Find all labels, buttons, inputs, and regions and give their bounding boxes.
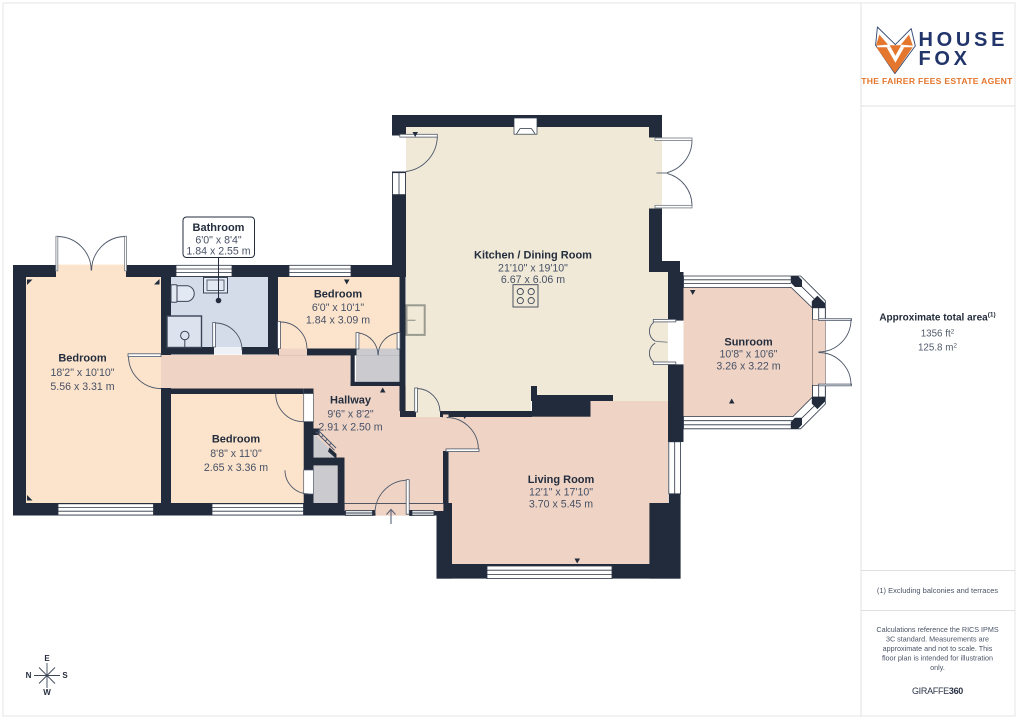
svg-text:S: S [62, 671, 68, 680]
svg-text:1.84 x 3.09 m: 1.84 x 3.09 m [306, 315, 370, 327]
svg-text:Calculations reference the RIC: Calculations reference the RICS IPMS [876, 625, 998, 634]
svg-text:THE FAIRER FEES ESTATE AGENT: THE FAIRER FEES ESTATE AGENT [861, 76, 1013, 86]
svg-text:Approximate total area(1): Approximate total area(1) [879, 312, 995, 324]
svg-text:8'8" x 11'0": 8'8" x 11'0" [210, 448, 262, 460]
svg-text:1.84 x 2.55 m: 1.84 x 2.55 m [186, 246, 250, 258]
svg-text:W: W [43, 688, 51, 697]
svg-text:3C standard. Measurements are: 3C standard. Measurements are [886, 635, 989, 644]
svg-text:(1) Excluding balconies and te: (1) Excluding balconies and terraces [877, 586, 999, 595]
svg-text:Living Room: Living Room [528, 474, 595, 486]
svg-text:approximate and not to scale.: approximate and not to scale. This [883, 644, 993, 653]
svg-text:2.91 x 2.50 m: 2.91 x 2.50 m [318, 422, 382, 434]
svg-text:Bedroom: Bedroom [58, 353, 107, 365]
svg-text:Bedroom: Bedroom [314, 289, 363, 301]
svg-text:2.65 x 3.36 m: 2.65 x 3.36 m [204, 462, 268, 474]
svg-text:Sunroom: Sunroom [724, 337, 772, 349]
svg-text:Kitchen / Dining Room: Kitchen / Dining Room [474, 250, 592, 262]
svg-text:6'0" x 10'1": 6'0" x 10'1" [312, 302, 364, 314]
svg-text:floor plan is intended for ill: floor plan is intended for illustration [882, 654, 993, 663]
svg-text:3.70 x 5.45 m: 3.70 x 5.45 m [529, 499, 593, 511]
svg-text:N: N [26, 671, 32, 680]
svg-text:Hallway: Hallway [330, 395, 372, 407]
svg-text:21'10" x 19'10": 21'10" x 19'10" [498, 263, 568, 275]
svg-text:only.: only. [930, 663, 945, 672]
svg-text:6.67 x 6.06 m: 6.67 x 6.06 m [501, 274, 565, 286]
svg-text:3.26 x 3.22 m: 3.26 x 3.22 m [716, 361, 780, 373]
svg-text:9'6" x 8'2": 9'6" x 8'2" [327, 409, 374, 421]
svg-text:FOX: FOX [919, 48, 971, 70]
svg-text:18'2" x 10'10": 18'2" x 10'10" [51, 367, 115, 379]
svg-text:GIRAFFE360: GIRAFFE360 [912, 686, 963, 696]
svg-text:1356 ft2: 1356 ft2 [921, 329, 955, 340]
svg-text:12'1" x 17'10": 12'1" x 17'10" [529, 487, 593, 499]
svg-text:Bedroom: Bedroom [212, 434, 261, 446]
svg-text:10'8" x 10'6": 10'8" x 10'6" [719, 349, 777, 361]
svg-text:5.56 x 3.31 m: 5.56 x 3.31 m [50, 381, 114, 393]
svg-text:Bathroom: Bathroom [193, 222, 245, 234]
svg-text:125.8 m2: 125.8 m2 [918, 343, 957, 354]
svg-text:E: E [44, 654, 50, 663]
